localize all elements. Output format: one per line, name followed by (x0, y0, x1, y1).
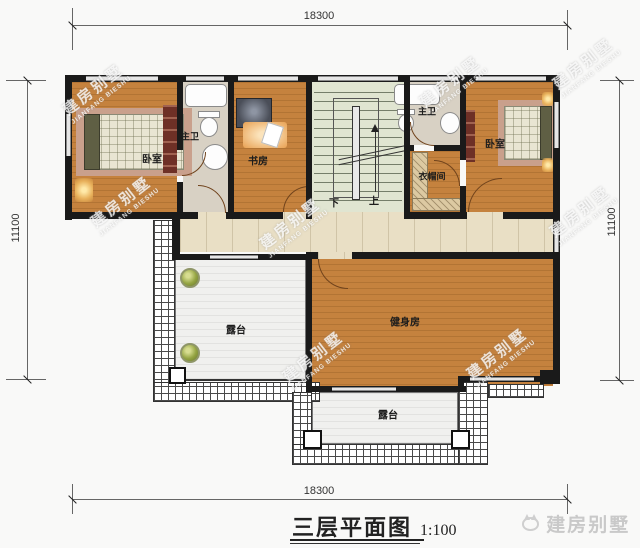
dim-value-bottom: 18300 (304, 485, 335, 497)
pillar-bottom-left (303, 430, 322, 449)
wall-rooms-bottom-4 (503, 212, 553, 219)
room-label-closet: 衣帽间 (418, 170, 445, 183)
title-underline-1 (290, 539, 424, 541)
stair-up-line (375, 130, 376, 192)
title-underline-2 (290, 543, 420, 544)
wall-study-stairs (306, 82, 312, 219)
room-label-terrace-left: 露台 (226, 322, 246, 337)
wall-right-gym (553, 260, 560, 384)
window-top-6 (476, 76, 546, 81)
window-top-4 (318, 76, 398, 81)
room-label-terrace-bottom: 露台 (378, 407, 398, 422)
window-gym-bottom (332, 387, 396, 391)
room-label-bath-right: 主卫 (418, 105, 436, 118)
window-right-bedroom (554, 102, 559, 148)
terrace-left-edge-line (175, 379, 306, 381)
brand-text: 建房别墅 (546, 515, 630, 536)
dim-value-right: 11100 (606, 208, 618, 237)
room-label-study: 书房 (248, 153, 268, 168)
room-gym-floor (312, 252, 553, 386)
wall-gym-step (458, 376, 464, 392)
bathtub-right (394, 84, 440, 105)
wardrobe-left (163, 105, 177, 173)
stair-label-up: 上 (369, 193, 379, 208)
room-label-bedroom-right: 卧室 (485, 136, 505, 151)
toilet-left-bowl (200, 117, 218, 137)
window-top-1 (86, 76, 158, 81)
dim-ext-right-top (600, 80, 634, 81)
brand-logo-icon (522, 517, 539, 531)
plant-terrace-bottom (180, 343, 200, 363)
wall-bath-study (228, 82, 234, 219)
gym-door-gap (318, 252, 352, 259)
walkway-hatch-gym-right (488, 384, 544, 398)
stair-up-arrow (371, 124, 379, 132)
closet-shelf-bottom (412, 198, 462, 211)
plant-terrace-top (180, 268, 200, 288)
wall-hallway-left (172, 212, 180, 260)
bed-left-pillow (84, 114, 100, 170)
wall-rooms-bottom-3 (404, 212, 467, 219)
dim-value-top: 18300 (304, 10, 335, 22)
dim-value-left: 11100 (10, 214, 22, 243)
dim-ext-top-left (72, 8, 73, 50)
window-right-hall (554, 228, 559, 252)
room-label-bedroom-left: 卧室 (142, 151, 162, 166)
dim-line-right (619, 80, 620, 380)
dim-line-left (27, 80, 28, 379)
dim-line-top (72, 25, 567, 26)
bed-right-pillow (540, 106, 552, 160)
brand-watermark: 建房别墅 (522, 510, 630, 537)
floor-plan-canvas: 卧室 主卫 书房 主卫 衣帽间 卧室 健身房 露台 露台 下 上 18300 1… (0, 0, 640, 548)
nightstand-left (75, 178, 93, 202)
plan-title: 三层平面图 (292, 515, 412, 540)
window-terrace-left (210, 255, 258, 259)
wall-bath-closet-2 (434, 145, 466, 151)
window-top-2 (186, 76, 224, 81)
wardrobe-right (466, 110, 475, 162)
window-top-3 (238, 76, 298, 81)
title-block: 三层平面图1:100 (292, 510, 456, 542)
wall-bath-closet-1 (404, 145, 414, 151)
room-label-gym: 健身房 (390, 314, 420, 329)
wall-gym-corner-cap (540, 370, 560, 384)
pillar-terrace-left (169, 367, 186, 384)
pillar-bottom-right (451, 430, 470, 449)
sink-right (440, 112, 460, 134)
room-label-bath-left: 主卫 (181, 130, 199, 143)
stair-label-down: 下 (329, 195, 339, 210)
plan-scale: 1:100 (420, 522, 456, 539)
window-left-bedroom (66, 114, 71, 156)
window-gym-bottom-right (470, 377, 534, 381)
wall-gym-left (306, 254, 312, 392)
dim-line-bottom (72, 499, 567, 500)
bathtub-left (185, 84, 227, 107)
window-top-5 (410, 76, 458, 81)
walkway-hatch-bottom-right (458, 382, 488, 465)
wall-rooms-bottom-2 (226, 212, 283, 219)
wall-bath-bedroom-right-2 (460, 186, 466, 219)
dim-ext-right-bottom (600, 380, 634, 381)
dim-ext-top-right (567, 10, 568, 50)
stair-rail (352, 106, 360, 200)
sink-left (202, 144, 228, 170)
